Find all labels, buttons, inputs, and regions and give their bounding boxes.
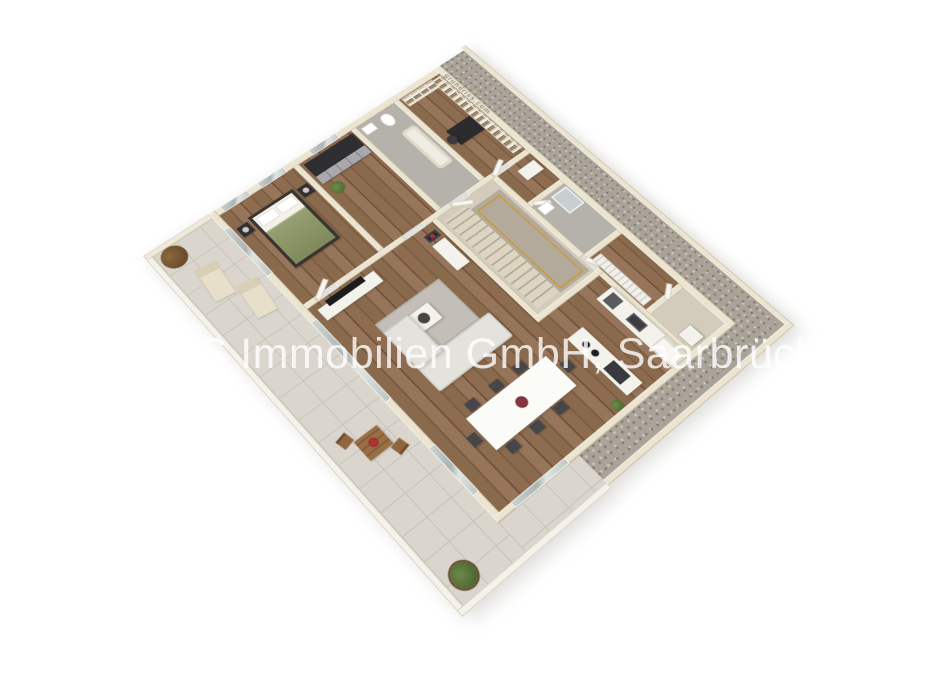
floor-plan-render: grundriss.com LBS Immobilien GmbH, Saarb… bbox=[0, 0, 933, 700]
watermark-text: LBS Immobilien GmbH, Saarbrücken © bbox=[145, 330, 911, 379]
